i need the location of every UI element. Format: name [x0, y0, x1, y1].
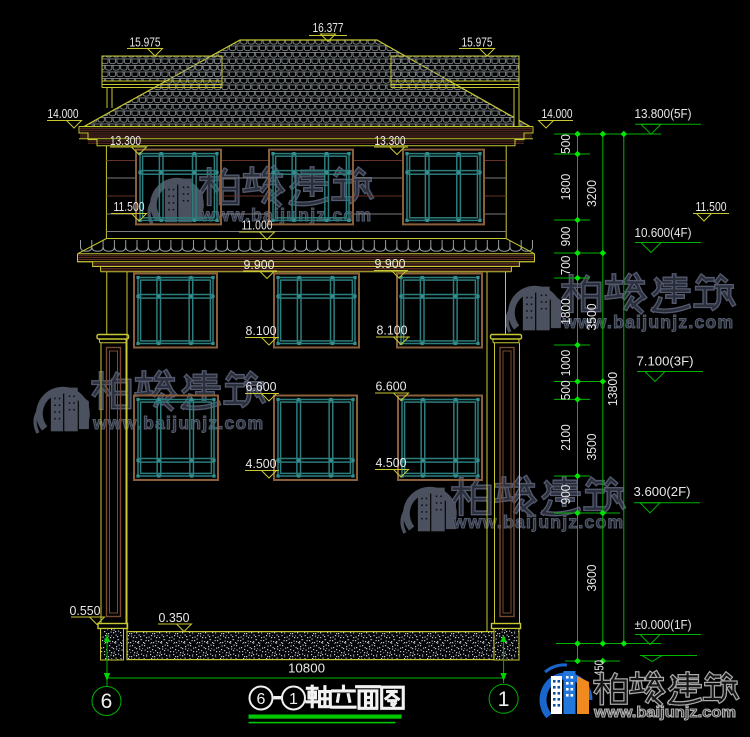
- svg-text:900: 900: [558, 227, 573, 247]
- svg-text:11.500: 11.500: [696, 199, 727, 214]
- svg-text:www.baijunjz.com: www.baijunjz.com: [452, 512, 623, 532]
- svg-text:3600: 3600: [584, 565, 599, 592]
- svg-text:1: 1: [498, 688, 510, 711]
- svg-text:15.975: 15.975: [130, 35, 161, 50]
- svg-text:1: 1: [289, 691, 298, 708]
- svg-text:±0.000(1F): ±0.000(1F): [635, 617, 692, 632]
- svg-text:6: 6: [257, 691, 266, 708]
- svg-text:11.500: 11.500: [114, 199, 145, 214]
- svg-text:1800: 1800: [558, 298, 573, 324]
- svg-text:www.baijunjz.com: www.baijunjz.com: [200, 205, 371, 225]
- svg-text:450: 450: [592, 660, 607, 676]
- svg-text:13.800(5F): 13.800(5F): [635, 106, 692, 121]
- svg-text:0.550: 0.550: [70, 603, 101, 618]
- svg-text:8.100: 8.100: [377, 323, 408, 338]
- svg-text:0.350: 0.350: [159, 610, 190, 625]
- svg-text:6.600: 6.600: [376, 379, 407, 394]
- svg-text:500: 500: [558, 380, 573, 400]
- svg-text:3.600(2F): 3.600(2F): [634, 484, 691, 499]
- svg-text:1800: 1800: [558, 174, 573, 200]
- svg-text:13.300: 13.300: [375, 133, 406, 148]
- svg-text:4.500: 4.500: [246, 456, 277, 471]
- svg-text:8.100: 8.100: [246, 323, 277, 338]
- svg-text:11.000: 11.000: [242, 218, 273, 233]
- svg-text:3500: 3500: [584, 304, 599, 331]
- svg-text:14.000: 14.000: [542, 106, 573, 121]
- svg-text:15.975: 15.975: [462, 35, 493, 50]
- svg-text:13800: 13800: [605, 372, 620, 406]
- svg-text:3500: 3500: [584, 434, 599, 461]
- svg-text:900: 900: [558, 485, 573, 505]
- svg-text:10800: 10800: [288, 661, 325, 676]
- svg-text:www.baijunjz.com: www.baijunjz.com: [593, 705, 736, 721]
- svg-text:16.377: 16.377: [313, 20, 344, 35]
- svg-text:500: 500: [558, 134, 573, 154]
- svg-text:9.900: 9.900: [375, 256, 406, 271]
- svg-text:6: 6: [101, 690, 113, 713]
- svg-text:700: 700: [558, 256, 573, 276]
- svg-text:2100: 2100: [558, 424, 573, 450]
- svg-text:9.900: 9.900: [244, 257, 275, 272]
- svg-text:4.500: 4.500: [376, 455, 407, 470]
- svg-text:10.600(4F): 10.600(4F): [635, 225, 692, 240]
- svg-text:7.100(3F): 7.100(3F): [637, 354, 694, 369]
- svg-text:13.300: 13.300: [110, 133, 141, 148]
- svg-text:3200: 3200: [584, 180, 599, 207]
- svg-text:1000: 1000: [558, 350, 573, 376]
- svg-text:14.000: 14.000: [48, 106, 79, 121]
- svg-text:6.600: 6.600: [246, 379, 277, 394]
